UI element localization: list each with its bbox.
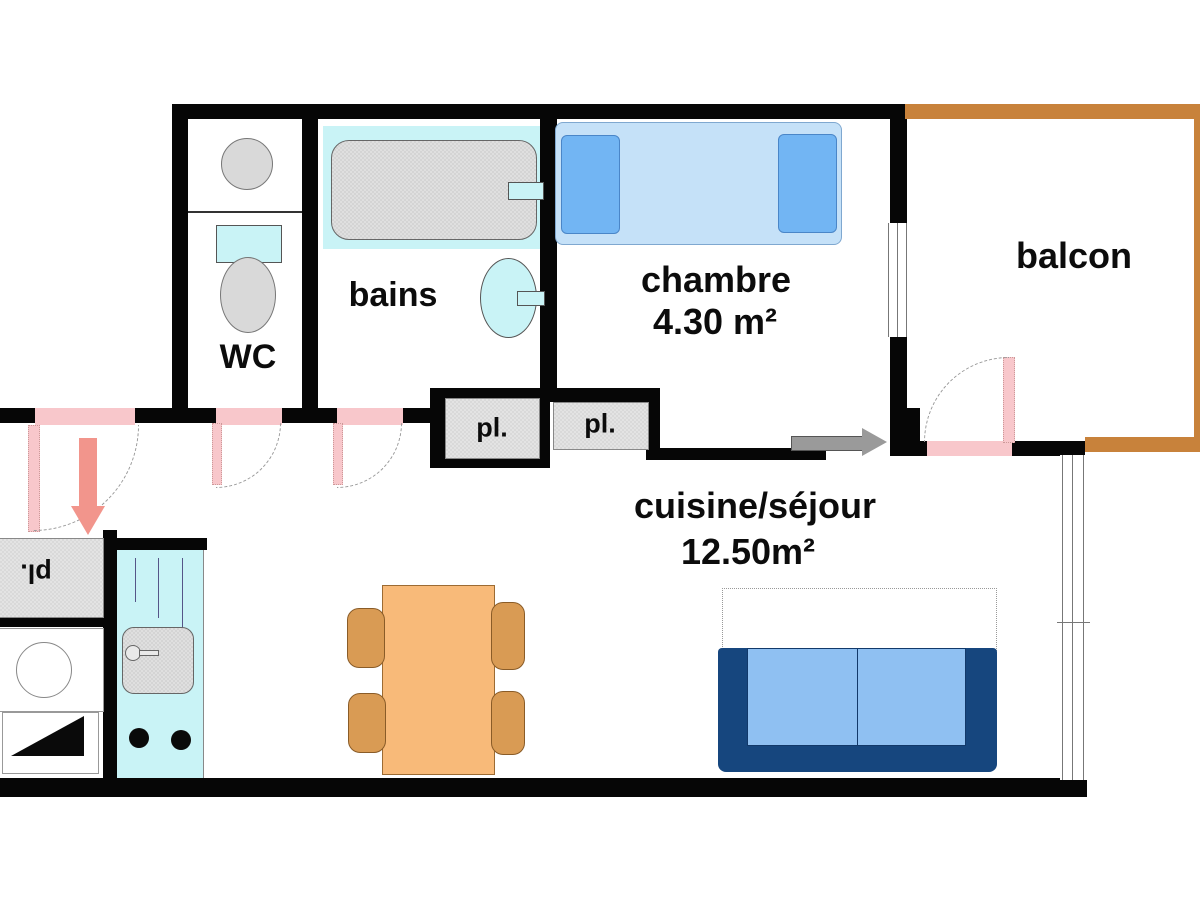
bains-sink-faucet-icon [517, 291, 545, 306]
closet-chambre-frame-top [540, 388, 660, 402]
bathtub [331, 140, 537, 240]
pillow-right [778, 134, 837, 233]
wall-wc-bains [302, 119, 318, 423]
kitchen-unit [117, 550, 204, 778]
wc-label: WC [220, 340, 277, 374]
burner-right-icon [171, 730, 191, 750]
kitchen-faucet-spout-icon [139, 650, 159, 656]
wc-door-arc [216, 423, 281, 488]
chair [491, 602, 525, 670]
pillow-left [561, 135, 620, 234]
sofabed-outline [722, 588, 997, 651]
chambre-area-label: 4.30 m² [653, 304, 777, 340]
vent-box [2, 712, 99, 774]
dining-table [382, 585, 495, 775]
chambre-label: chambre [641, 262, 791, 298]
wall-corridor-2 [135, 408, 216, 423]
balcon-label: balcon [1016, 238, 1132, 274]
chair [491, 691, 525, 755]
bains-door-arc [337, 423, 402, 488]
bed [555, 122, 842, 245]
cuisine-label: cuisine/séjour [634, 488, 876, 524]
wall-chambre-right-top [890, 119, 907, 223]
sofa-cushion [857, 648, 966, 746]
wall-top [172, 104, 905, 119]
closet-hall-label: pl. [20, 560, 52, 587]
sejour-window [1060, 455, 1087, 780]
bains-label: bains [349, 278, 438, 312]
balcony-rail-bottom [1085, 437, 1200, 452]
balcony-door-sill [927, 441, 1012, 456]
wall-kitchen-cap [103, 538, 207, 550]
wc-divider-line [188, 211, 302, 213]
washing-machine-drum-icon [16, 642, 72, 698]
closet-chambre-label: pl. [584, 411, 616, 438]
wall-bottom [0, 778, 1087, 797]
chair [347, 608, 385, 668]
cuisine-area-label: 12.50m² [681, 534, 815, 570]
burner-left-icon [129, 728, 149, 748]
bathtub-surround [323, 126, 540, 249]
bathtub-faucet-icon [508, 182, 544, 200]
closet-hall [0, 538, 104, 618]
wall-wc-left [172, 104, 188, 423]
chair [348, 693, 386, 753]
washing-machine [0, 628, 104, 712]
closet-bains-label: pl. [476, 415, 508, 442]
sofa-cushion [747, 648, 859, 746]
wall-hall-divider [0, 617, 103, 627]
toilet-bowl [220, 257, 276, 333]
floor-plan: WC bains chambre 4.30 m² balcon cuisine/… [0, 0, 1200, 900]
sofa [718, 648, 997, 772]
wall-corridor-1 [0, 408, 35, 423]
vent-triangle-icon [11, 716, 84, 756]
wall-corridor-4 [403, 408, 430, 423]
wall-kitchen-right [103, 530, 117, 778]
balcony-door-arc [924, 357, 1009, 442]
balcony-rail-right [1194, 108, 1200, 452]
wall-corridor-3 [282, 408, 337, 423]
entrance-door-lintel [35, 408, 135, 425]
wc-sink [221, 138, 273, 190]
balcony-rail-top [905, 104, 1200, 119]
chambre-balcony-window [888, 223, 907, 337]
